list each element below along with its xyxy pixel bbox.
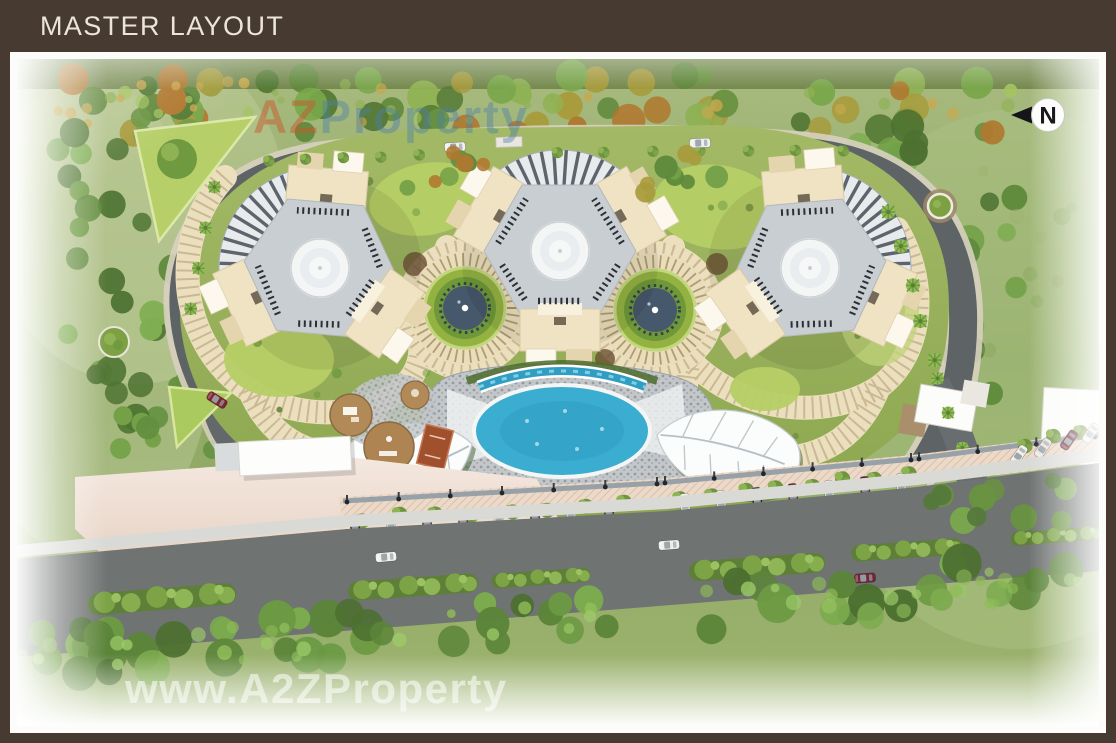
car-road-white1 <box>375 552 397 563</box>
car-road-maroon3 <box>854 573 876 584</box>
master-layout-plan: AZProperty www.A2ZProperty N <box>17 59 1099 726</box>
north-label: N <box>1039 103 1056 130</box>
fade-right <box>1029 59 1099 726</box>
car-top-white2 <box>689 138 710 148</box>
fade-bottom <box>17 654 1099 726</box>
car-road-white2 <box>658 540 680 551</box>
circular-planter-east <box>923 189 957 223</box>
page-title: MASTER LAYOUT <box>40 11 284 42</box>
plan-frame: AZProperty www.A2ZProperty N <box>10 52 1106 733</box>
header-bar: MASTER LAYOUT <box>0 0 1116 52</box>
